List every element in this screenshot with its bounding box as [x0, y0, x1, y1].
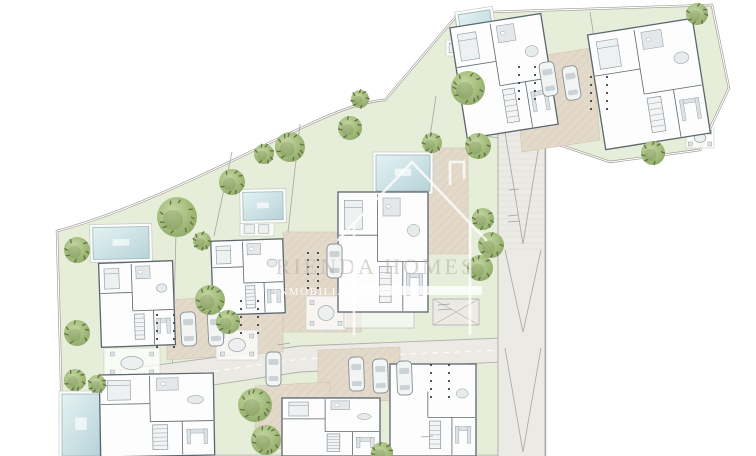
- junction-marker: [433, 299, 479, 325]
- patio-furniture: [240, 222, 274, 236]
- tree: [64, 320, 90, 346]
- swimming-pool: [59, 391, 103, 456]
- parked-car: [348, 357, 364, 392]
- tree: [472, 208, 494, 230]
- villa-floorplan-i: [282, 398, 380, 456]
- site-plan: RIENDA HOMES INMOBILIARIA: [0, 0, 756, 456]
- tree: [451, 71, 485, 105]
- tree: [238, 388, 272, 422]
- watermark-line1: RIENDA HOMES: [276, 254, 476, 279]
- parked-car: [180, 312, 197, 347]
- watermark-underline: [360, 286, 482, 295]
- tree: [275, 132, 305, 162]
- tree: [64, 369, 86, 391]
- swimming-pool: [240, 189, 287, 224]
- parked-car: [396, 361, 412, 396]
- tree: [219, 169, 245, 195]
- tree: [251, 425, 281, 455]
- tree: [686, 3, 708, 25]
- tree: [254, 144, 274, 164]
- villa-floorplan-d: [99, 261, 176, 348]
- tree: [422, 133, 442, 153]
- tree: [64, 237, 90, 263]
- site-plan-canvas: RIENDA HOMES INMOBILIARIA: [0, 0, 756, 456]
- tree: [195, 285, 225, 315]
- tree: [157, 197, 197, 237]
- watermark-line2: INMOBILIARIA: [274, 286, 370, 298]
- tree: [641, 141, 665, 165]
- tree: [216, 310, 240, 334]
- tree: [465, 133, 491, 159]
- parked-car: [266, 352, 281, 386]
- tree: [338, 116, 362, 140]
- villa-floorplan-h: [99, 373, 214, 456]
- parked-car: [372, 359, 388, 394]
- scene-root: [57, 3, 729, 456]
- tree: [88, 375, 106, 393]
- swimming-pool: [90, 223, 153, 262]
